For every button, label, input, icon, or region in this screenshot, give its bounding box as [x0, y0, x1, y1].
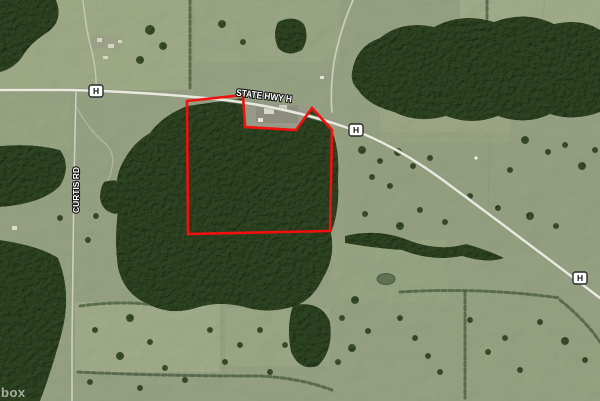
satellite-map[interactable]: H H H STATE HWY H CURTIS RD box [0, 0, 600, 401]
building [12, 226, 17, 230]
shield-letter: H [577, 273, 583, 283]
farm-building [258, 118, 263, 122]
vehicle-on-road [474, 156, 477, 159]
highway-shield-southeast: H [573, 272, 587, 284]
building [320, 76, 324, 79]
shield-letter: H [353, 125, 359, 135]
forest-topmid-clump [275, 18, 307, 53]
label-curtis-rd: CURTIS RD [71, 167, 81, 213]
highway-shield-west: H [89, 85, 103, 97]
forest-topright [352, 16, 600, 121]
pond [377, 274, 395, 285]
shield-letter: H [93, 86, 99, 96]
mapbox-attribution[interactable]: box [1, 385, 26, 400]
highway-shield-mid: H [349, 124, 363, 136]
